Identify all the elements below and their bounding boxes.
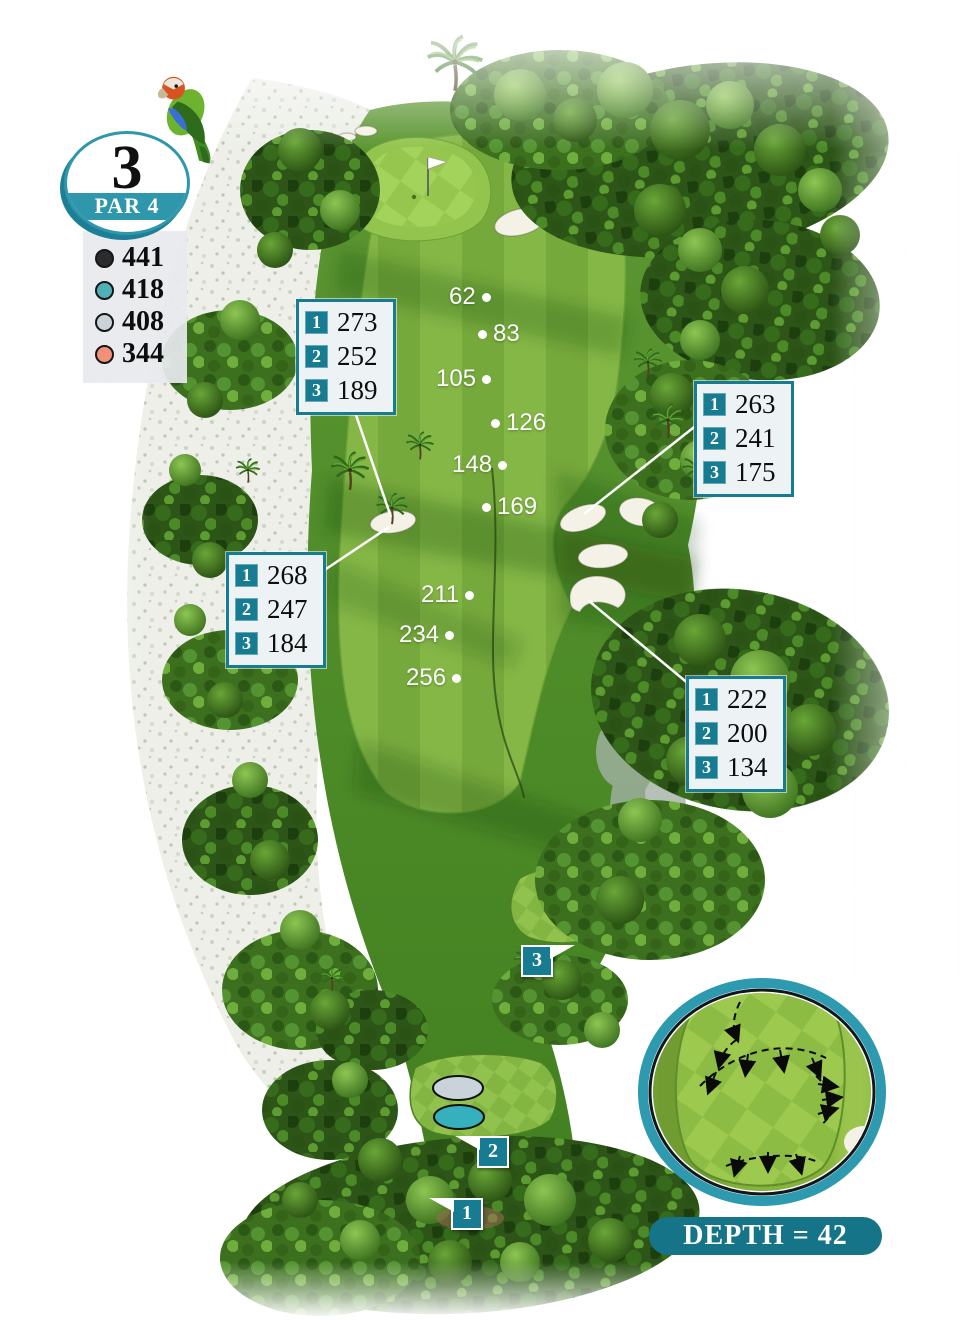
callout-yardage: 252 (337, 341, 384, 372)
distance-dot-icon (465, 591, 474, 600)
silver-tee-dot-icon (95, 313, 114, 332)
callout-yardage: 184 (267, 628, 314, 659)
green-depth-banner: DEPTH = 42 (649, 1217, 882, 1255)
distance-dot-icon (482, 503, 491, 512)
callout-row: 2 252 (305, 341, 384, 372)
teal-tee-dot-icon (95, 281, 114, 300)
distance-marker-211: 211 (421, 581, 474, 609)
distance-value: 83 (493, 320, 520, 348)
legend-row-silver: 408 (95, 307, 181, 337)
tee-box-number: 2 (488, 1140, 498, 1162)
callout-row: 3 175 (703, 457, 782, 488)
tee-badge: 3 (235, 632, 258, 655)
tee-badge: 1 (235, 564, 258, 587)
tee-badge: 1 (695, 688, 718, 711)
callout-row: 1 273 (305, 307, 384, 338)
legend-row-orange: 344 (95, 339, 181, 369)
tee-marker-silver (433, 1076, 483, 1100)
legend-row-teal: 418 (95, 275, 181, 305)
cup (412, 195, 416, 199)
distance-value: 126 (506, 409, 546, 437)
distance-dot-icon (482, 375, 491, 384)
tee-box-label-1: 1 (451, 1198, 483, 1230)
tee-box-label-2: 2 (477, 1136, 509, 1168)
callout-row: 2 200 (695, 718, 774, 749)
tee-label-pointer (455, 1136, 480, 1150)
callout-row: 2 241 (703, 423, 782, 454)
distance-dot-icon (482, 293, 491, 302)
tee-badge: 3 (695, 756, 718, 779)
tee-marker-teal (434, 1105, 484, 1129)
legend-row-black: 441 (95, 243, 181, 273)
tee-badge: 2 (305, 345, 328, 368)
callout-mid-left: 1 268 2 247 3 184 (226, 552, 326, 668)
green-detail-inset (643, 983, 884, 1201)
tee-badge: 1 (703, 393, 726, 416)
distance-dot-icon (478, 330, 487, 339)
tee-box-label-3: 3 (521, 945, 553, 977)
callout-upper-right: 1 263 2 241 3 175 (694, 381, 794, 497)
tee-box-number: 3 (532, 949, 542, 971)
callout-row: 1 268 (235, 560, 314, 591)
callout-mid-right: 1 222 2 200 3 134 (686, 676, 786, 792)
callout-row: 3 189 (305, 375, 384, 406)
callout-yardage: 241 (735, 423, 782, 454)
callout-yardage: 263 (735, 389, 782, 420)
distance-dot-icon (498, 461, 507, 470)
tee-badge: 3 (305, 379, 328, 402)
callout-row: 1 222 (695, 684, 774, 715)
par-label: PAR 4 (67, 193, 187, 220)
callout-yardage: 222 (727, 684, 774, 715)
distance-dot-icon (491, 419, 500, 428)
distance-marker-148: 148 (452, 451, 507, 479)
callout-upper-left: 1 273 2 252 3 189 (296, 299, 396, 415)
tee-badge: 2 (235, 598, 258, 621)
distance-marker-256: 256 (406, 664, 461, 692)
golf-hole-page: 3 PAR 4 441 418 408 344 1 273 2 252 3 18… (0, 0, 960, 1320)
parrot-icon (150, 72, 232, 166)
putting-green (363, 147, 476, 227)
distance-marker-83: 83 (478, 320, 520, 348)
tee-box-number: 1 (462, 1202, 472, 1224)
yardage-black: 441 (122, 242, 164, 274)
yardage-orange: 344 (122, 338, 164, 370)
tee-badge: 2 (695, 722, 718, 745)
distance-value: 62 (449, 283, 476, 311)
distance-marker-126: 126 (491, 409, 546, 437)
callout-yardage: 273 (337, 307, 384, 338)
tee-label-pointer (429, 1198, 454, 1212)
distance-marker-234: 234 (399, 621, 454, 649)
callout-row: 1 263 (703, 389, 782, 420)
orange-tee-dot-icon (95, 345, 114, 364)
distance-dot-icon (445, 631, 454, 640)
tee-badge: 2 (703, 427, 726, 450)
distance-value: 169 (497, 493, 537, 521)
distance-value: 256 (406, 664, 446, 692)
mist-right (830, 0, 960, 980)
callout-row: 3 134 (695, 752, 774, 783)
distance-marker-105: 105 (436, 365, 491, 393)
black-tee-dot-icon (95, 249, 114, 268)
callout-yardage: 189 (337, 375, 384, 406)
tee-label-pointer (550, 945, 575, 959)
callout-yardage: 175 (735, 457, 782, 488)
callout-yardage: 134 (727, 752, 774, 783)
callout-yardage: 200 (727, 718, 774, 749)
distance-value: 211 (421, 581, 459, 609)
distance-marker-62: 62 (449, 283, 491, 311)
mist-bottom (0, 1262, 960, 1320)
tee-legend: 441 418 408 344 (83, 231, 187, 383)
distance-dot-icon (452, 674, 461, 683)
yardage-silver: 408 (122, 306, 164, 338)
distance-marker-169: 169 (482, 493, 537, 521)
distance-value: 105 (436, 365, 476, 393)
tee-badge: 1 (305, 311, 328, 334)
callout-yardage: 268 (267, 560, 314, 591)
distance-value: 148 (452, 451, 492, 479)
yardage-teal: 418 (122, 274, 164, 306)
callout-row: 2 247 (235, 594, 314, 625)
callout-yardage: 247 (267, 594, 314, 625)
distance-value: 234 (399, 621, 439, 649)
callout-row: 3 184 (235, 628, 314, 659)
tee-badge: 3 (703, 461, 726, 484)
